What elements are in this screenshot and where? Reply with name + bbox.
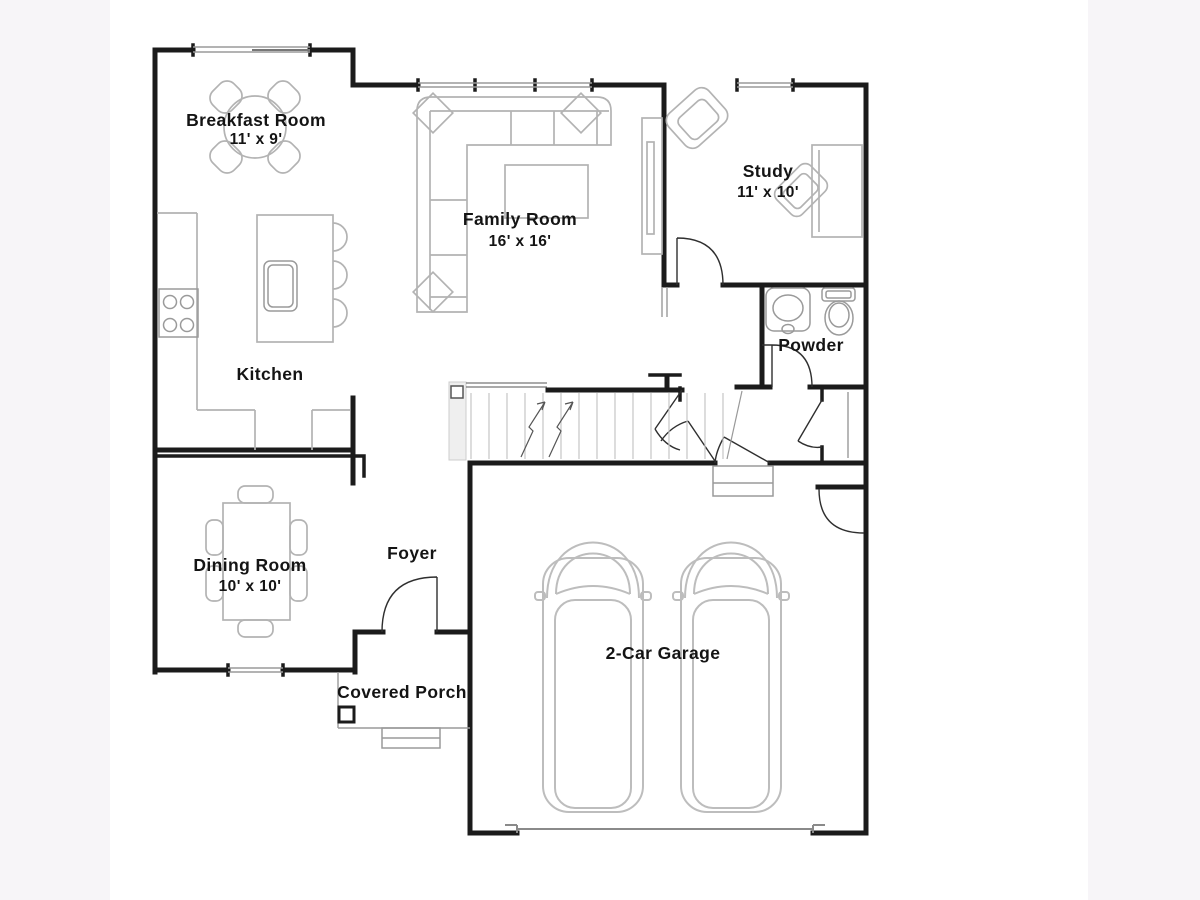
porch-column <box>339 707 354 722</box>
floor-plan-drawing: Breakfast Room 11' x 9' Family Room 16' … <box>0 0 1200 900</box>
room-label-foyer: Foyer <box>387 543 437 563</box>
stair-newel <box>451 386 463 398</box>
room-label-kitchen: Kitchen <box>237 364 304 384</box>
room-label-family: Family Room <box>463 209 577 229</box>
room-label-porch: Covered Porch <box>337 682 467 702</box>
room-label-dining: Dining Room <box>193 555 306 575</box>
room-dims-study: 11' x 10' <box>737 184 799 201</box>
room-label-breakfast: Breakfast Room <box>186 110 326 130</box>
room-label-garage: 2-Car Garage <box>606 643 721 663</box>
room-label-study: Study <box>743 161 794 181</box>
room-dims-breakfast: 11' x 9' <box>230 131 283 148</box>
room-dims-dining: 10' x 10' <box>219 578 282 595</box>
floor-plan-page: Breakfast Room 11' x 9' Family Room 16' … <box>0 0 1200 900</box>
room-dims-family: 16' x 16' <box>489 233 552 250</box>
room-label-powder: Powder <box>778 335 844 355</box>
